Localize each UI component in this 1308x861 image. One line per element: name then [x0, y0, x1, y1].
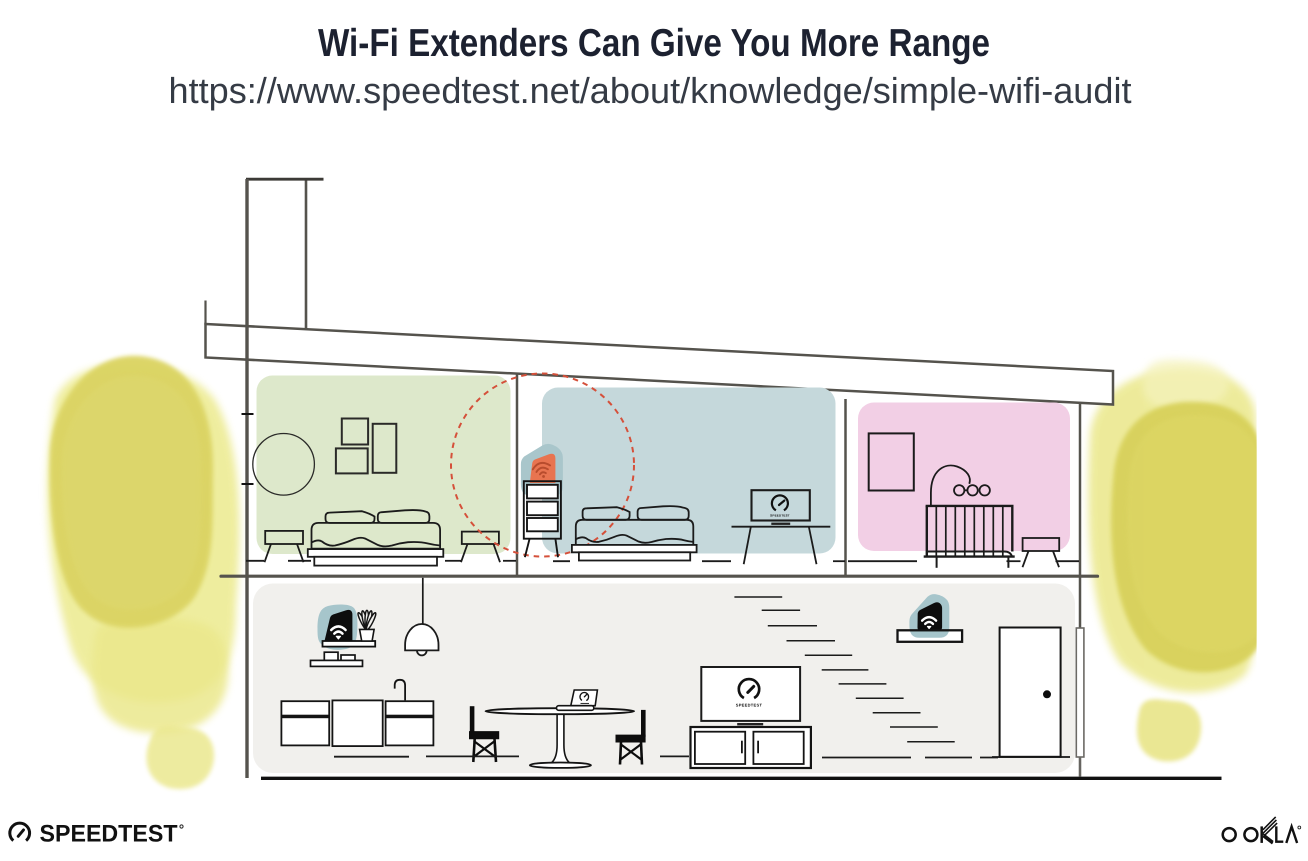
svg-text:Wi-Fi Extenders Can Give You M: Wi-Fi Extenders Can Give You More Range: [318, 22, 990, 65]
svg-text:https://www.speedtest.net/abou: https://www.speedtest.net/about/knowledg…: [169, 70, 1132, 111]
svg-text:SPEEDTEST: SPEEDTEST: [40, 821, 178, 848]
svg-text:SPEEDTEST: SPEEDTEST: [770, 514, 790, 518]
svg-text:SPEEDTEST: SPEEDTEST: [736, 703, 763, 708]
